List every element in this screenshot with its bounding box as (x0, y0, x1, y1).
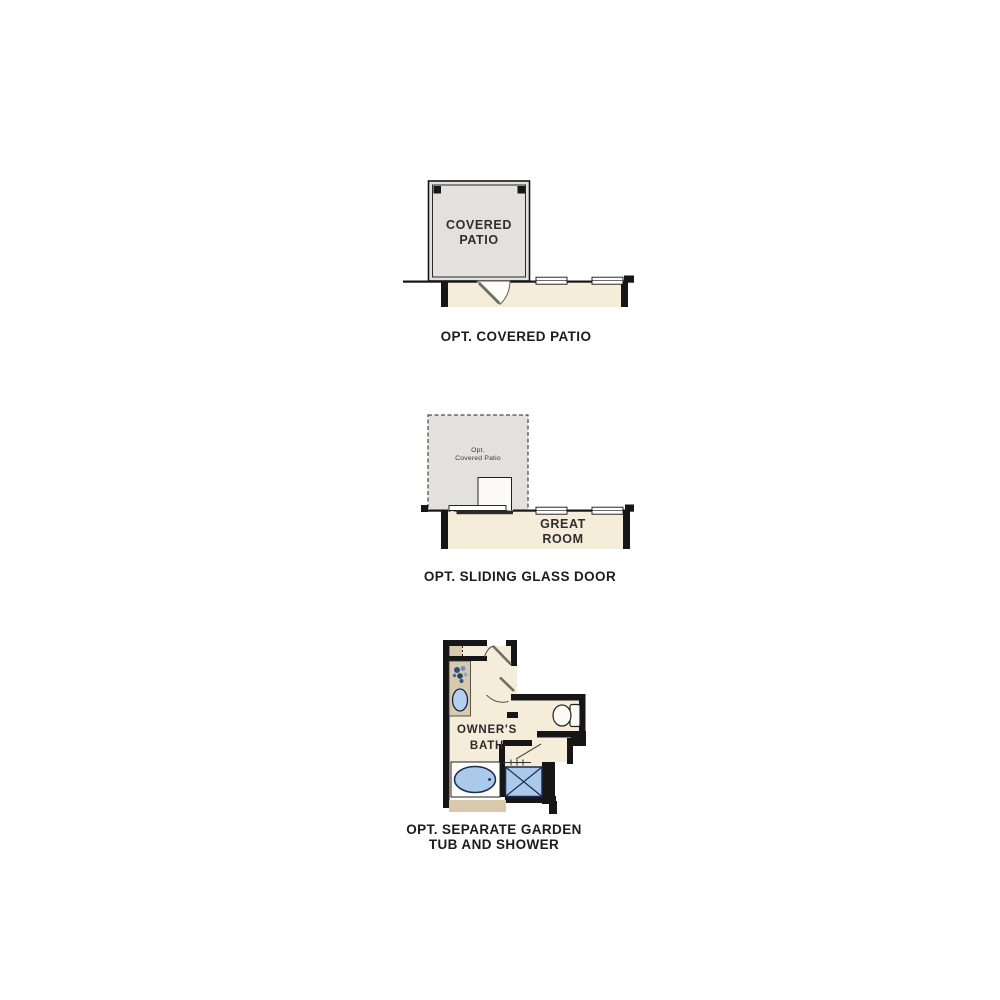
sink-icon (453, 689, 468, 711)
wall (511, 646, 517, 666)
toilet-icon (553, 705, 580, 727)
interior-room-floor (441, 282, 628, 307)
floor-plan-drawing: COVERED PATIO OPT. COVERED PATIO Opt. (0, 0, 1000, 1000)
figure-caption-line1: OPT. SEPARATE GARDEN (406, 822, 582, 837)
figure-covered-patio: COVERED PATIO OPT. COVERED PATIO (403, 181, 634, 344)
wall (506, 640, 517, 646)
room-label-line1: OWNER'S (457, 724, 517, 736)
window-icon (592, 507, 623, 514)
wall (549, 801, 557, 814)
corner-post-icon (518, 186, 526, 194)
figure-garden-tub-shower: OWNER'S BATH OPT. SEPARATE GARDEN TUB AN… (406, 640, 586, 852)
window-icon (592, 277, 623, 284)
wall (443, 640, 487, 646)
wall (507, 712, 518, 718)
corner-post-icon (434, 186, 442, 194)
wall (441, 282, 448, 307)
wall (571, 731, 586, 746)
wall (511, 694, 585, 701)
wall (443, 640, 450, 808)
wall (567, 738, 573, 764)
patio-label-line2: Covered Patio (455, 455, 501, 462)
wall (624, 276, 634, 282)
great-room-floor (441, 511, 630, 549)
room-label-line2: ROOM (542, 532, 583, 546)
floor-plan-options-sheet: COVERED PATIO OPT. COVERED PATIO Opt. (0, 0, 1000, 1000)
window-icon (536, 277, 567, 284)
exterior-wall-strip (449, 800, 506, 812)
room-label-line2: BATH (470, 740, 504, 752)
wall (621, 282, 628, 307)
patio-label-line1: Opt. (471, 447, 485, 454)
linen-shelves-icon (450, 646, 463, 656)
figure-caption-line2: TUB AND SHOWER (429, 837, 559, 852)
vanity (449, 661, 471, 716)
wall (503, 740, 532, 746)
figure-caption: OPT. COVERED PATIO (441, 329, 592, 344)
figure-sliding-glass-door: Opt. Covered Patio GREAT ROOM OPT. SLIDI… (421, 415, 634, 584)
patio-label-line2: PATIO (459, 233, 498, 247)
wall (441, 511, 448, 549)
sliding-glass-door-icon (449, 506, 513, 515)
wall (449, 656, 487, 661)
wall (403, 281, 477, 283)
wall (623, 511, 630, 549)
garden-tub-icon (451, 762, 500, 797)
wall (421, 510, 448, 512)
window-icon (536, 507, 567, 514)
figure-caption: OPT. SLIDING GLASS DOOR (424, 569, 616, 584)
room-label-line1: GREAT (540, 517, 586, 531)
wall (625, 505, 634, 511)
patio-label-line1: COVERED (446, 218, 512, 232)
